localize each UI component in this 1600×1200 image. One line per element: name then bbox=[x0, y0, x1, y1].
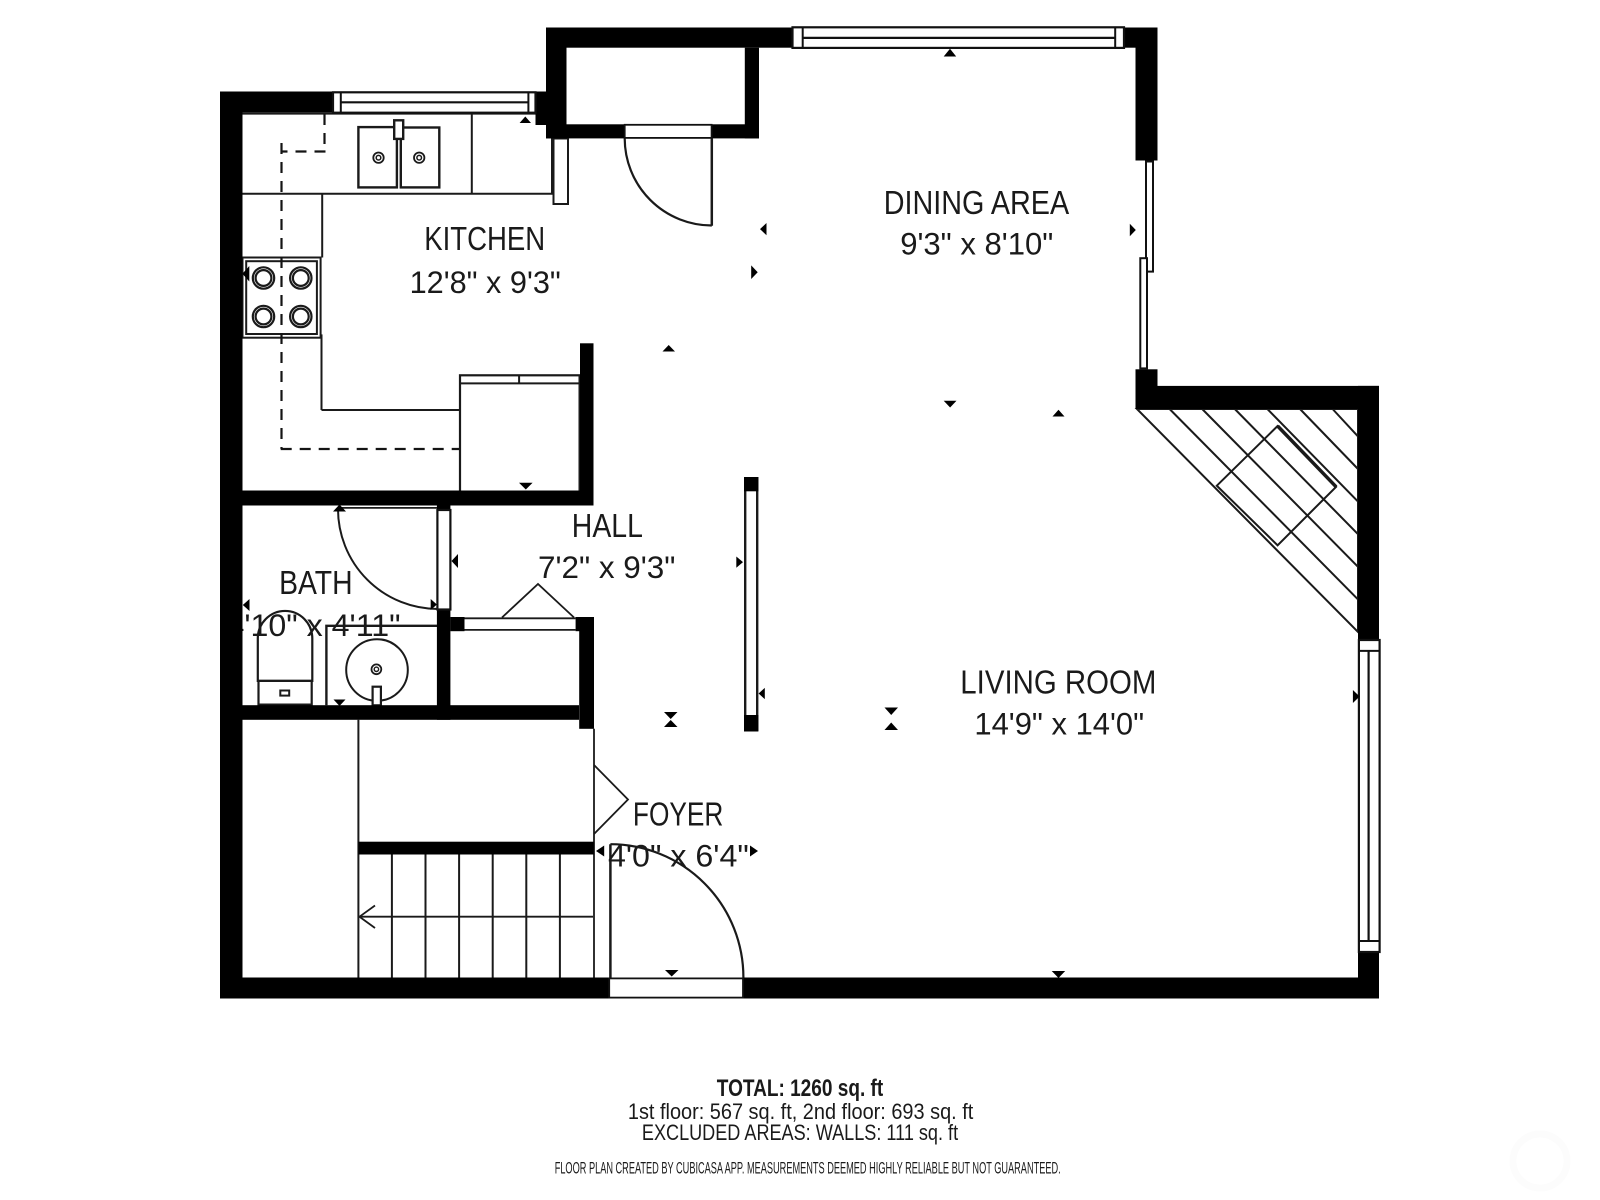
svg-text:FOYER: FOYER bbox=[633, 796, 724, 833]
svg-text:DINING AREA: DINING AREA bbox=[884, 185, 1070, 222]
svg-text:HALL: HALL bbox=[572, 508, 643, 545]
svg-text:KITCHEN: KITCHEN bbox=[424, 221, 545, 258]
svg-text:FLOOR PLAN CREATED BY CUBICASA: FLOOR PLAN CREATED BY CUBICASA APP. MEAS… bbox=[555, 1160, 1061, 1178]
svg-text:TOTAL: 1260 sq. ft: TOTAL: 1260 sq. ft bbox=[717, 1075, 883, 1102]
svg-text:9'3" x 8'10": 9'3" x 8'10" bbox=[900, 226, 1053, 262]
svg-text:4'0" x 6'4": 4'0" x 6'4" bbox=[608, 838, 749, 874]
svg-text:BATH: BATH bbox=[279, 565, 353, 602]
svg-text:7'2" x 9'3": 7'2" x 9'3" bbox=[538, 549, 675, 585]
svg-text:12'8" x 9'3": 12'8" x 9'3" bbox=[410, 264, 561, 300]
svg-text:4'10" x 4'11": 4'10" x 4'11" bbox=[227, 607, 401, 643]
svg-text:14'9" x 14'0": 14'9" x 14'0" bbox=[974, 706, 1144, 742]
svg-text:LIVING ROOM: LIVING ROOM bbox=[960, 665, 1156, 702]
svg-text:EXCLUDED AREAS: WALLS: 111 sq.: EXCLUDED AREAS: WALLS: 111 sq. ft bbox=[642, 1120, 958, 1145]
